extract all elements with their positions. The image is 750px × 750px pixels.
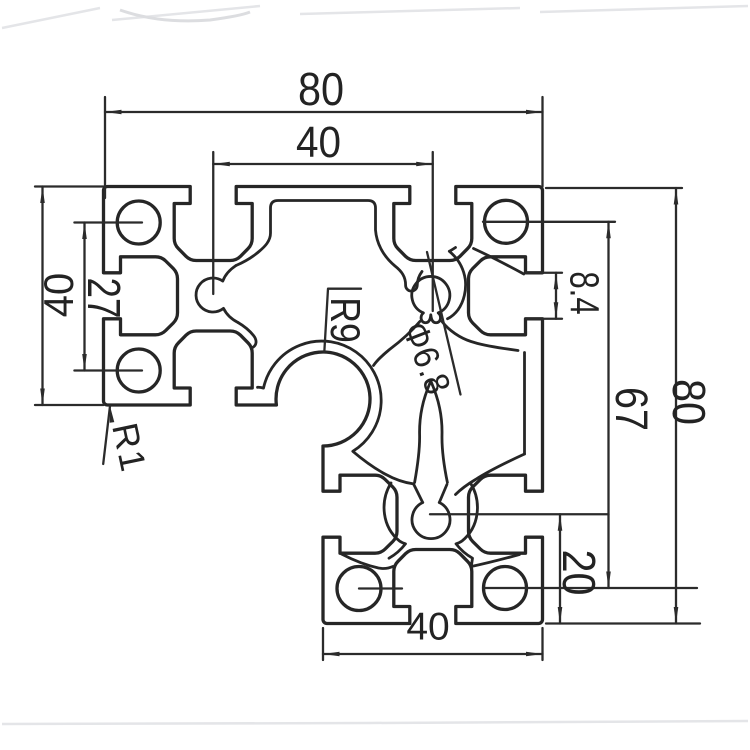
svg-text:80: 80: [298, 64, 344, 116]
svg-text:40: 40: [296, 117, 341, 166]
svg-text:R9: R9: [321, 297, 367, 343]
svg-text:80: 80: [662, 379, 714, 425]
svg-text:40: 40: [406, 606, 449, 649]
svg-text:8.4: 8.4: [561, 271, 607, 314]
svg-text:27: 27: [78, 278, 130, 319]
svg-text:67: 67: [606, 387, 656, 431]
svg-text:20: 20: [552, 549, 604, 595]
svg-text:40: 40: [35, 273, 82, 317]
